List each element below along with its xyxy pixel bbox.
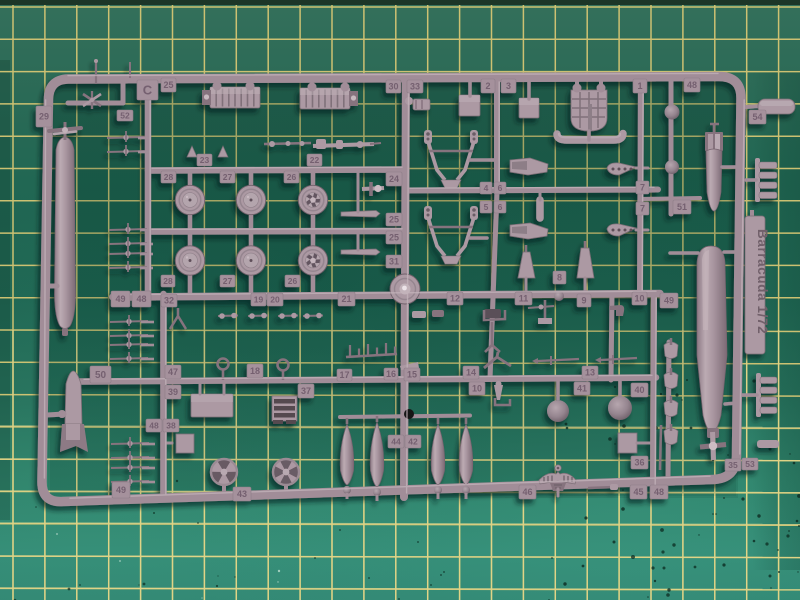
svg-text:53: 53 bbox=[745, 459, 755, 469]
svg-text:3: 3 bbox=[506, 81, 511, 91]
svg-text:4: 4 bbox=[484, 183, 489, 193]
svg-text:Barracuda 1/72: Barracuda 1/72 bbox=[755, 229, 770, 334]
svg-text:37: 37 bbox=[301, 386, 311, 396]
svg-text:47: 47 bbox=[168, 367, 178, 377]
svg-text:10: 10 bbox=[634, 294, 644, 304]
svg-text:25: 25 bbox=[389, 215, 399, 225]
svg-text:49: 49 bbox=[116, 485, 126, 495]
svg-text:29: 29 bbox=[39, 112, 49, 122]
svg-text:38: 38 bbox=[166, 421, 176, 431]
svg-text:35: 35 bbox=[728, 460, 738, 470]
svg-text:7: 7 bbox=[640, 183, 645, 193]
svg-text:43: 43 bbox=[237, 489, 247, 499]
svg-text:26: 26 bbox=[287, 172, 297, 182]
svg-text:33: 33 bbox=[410, 82, 420, 92]
svg-text:5: 5 bbox=[484, 202, 489, 212]
svg-text:1: 1 bbox=[637, 81, 642, 91]
svg-text:11: 11 bbox=[519, 294, 529, 304]
svg-text:20: 20 bbox=[270, 295, 280, 305]
svg-text:13: 13 bbox=[585, 368, 595, 378]
svg-text:48: 48 bbox=[149, 421, 159, 431]
svg-text:8: 8 bbox=[557, 273, 562, 283]
svg-text:19: 19 bbox=[254, 295, 264, 305]
svg-text:41: 41 bbox=[577, 384, 587, 394]
svg-text:24: 24 bbox=[389, 174, 399, 184]
svg-text:48: 48 bbox=[687, 80, 697, 90]
svg-text:21: 21 bbox=[341, 294, 351, 304]
svg-text:27: 27 bbox=[223, 172, 233, 182]
svg-text:49: 49 bbox=[115, 294, 125, 304]
svg-text:12: 12 bbox=[450, 294, 460, 304]
svg-text:46: 46 bbox=[522, 487, 532, 497]
svg-text:28: 28 bbox=[164, 172, 174, 182]
svg-text:32: 32 bbox=[164, 296, 174, 306]
svg-text:45: 45 bbox=[633, 487, 643, 497]
svg-text:14: 14 bbox=[466, 368, 476, 378]
svg-text:52: 52 bbox=[120, 111, 130, 121]
svg-text:30: 30 bbox=[388, 82, 398, 92]
svg-text:54: 54 bbox=[752, 112, 762, 122]
svg-text:2: 2 bbox=[485, 81, 490, 91]
svg-text:48: 48 bbox=[654, 487, 664, 497]
svg-text:31: 31 bbox=[389, 257, 399, 267]
svg-text:7: 7 bbox=[640, 204, 645, 214]
svg-text:25: 25 bbox=[163, 80, 173, 90]
svg-text:26: 26 bbox=[288, 276, 298, 286]
svg-text:39: 39 bbox=[168, 387, 178, 397]
svg-text:10: 10 bbox=[472, 384, 482, 394]
svg-text:16: 16 bbox=[386, 369, 396, 379]
svg-text:15: 15 bbox=[407, 370, 417, 380]
svg-text:28: 28 bbox=[163, 276, 173, 286]
svg-text:49: 49 bbox=[664, 296, 674, 306]
svg-text:23: 23 bbox=[200, 155, 210, 165]
svg-text:22: 22 bbox=[310, 155, 320, 165]
svg-text:27: 27 bbox=[223, 276, 233, 286]
svg-text:6: 6 bbox=[498, 183, 503, 193]
svg-text:48: 48 bbox=[136, 294, 146, 304]
svg-text:40: 40 bbox=[634, 385, 644, 395]
svg-text:36: 36 bbox=[634, 458, 644, 468]
svg-text:6: 6 bbox=[498, 202, 503, 212]
svg-text:42: 42 bbox=[408, 437, 418, 447]
svg-text:51: 51 bbox=[677, 202, 687, 212]
svg-text:C: C bbox=[143, 83, 153, 98]
svg-text:17: 17 bbox=[339, 370, 349, 380]
svg-text:9: 9 bbox=[581, 296, 586, 306]
svg-text:25: 25 bbox=[389, 233, 399, 243]
svg-text:44: 44 bbox=[391, 437, 401, 447]
svg-text:50: 50 bbox=[95, 370, 107, 381]
svg-text:18: 18 bbox=[250, 366, 260, 376]
